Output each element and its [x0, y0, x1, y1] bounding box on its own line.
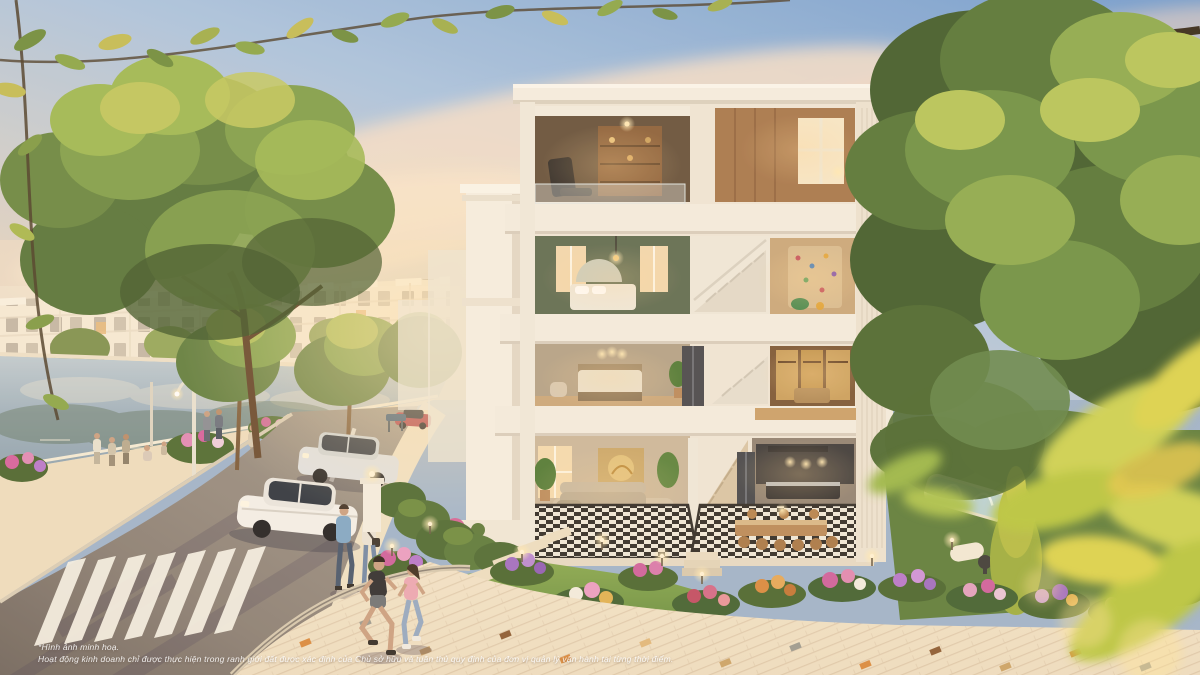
disclaimer-line2: Hoạt động kinh doanh chỉ được thực hiện …	[38, 653, 673, 665]
disclaimer-text: *Hình ảnh minh hoạ. Hoạt động kinh doanh…	[38, 641, 673, 665]
sunset-wash	[0, 0, 1200, 675]
scene-canvas	[0, 0, 1200, 675]
architectural-render-scene: *Hình ảnh minh hoạ. Hoạt động kinh doanh…	[0, 0, 1200, 675]
disclaimer-line1: *Hình ảnh minh hoạ.	[38, 641, 673, 653]
